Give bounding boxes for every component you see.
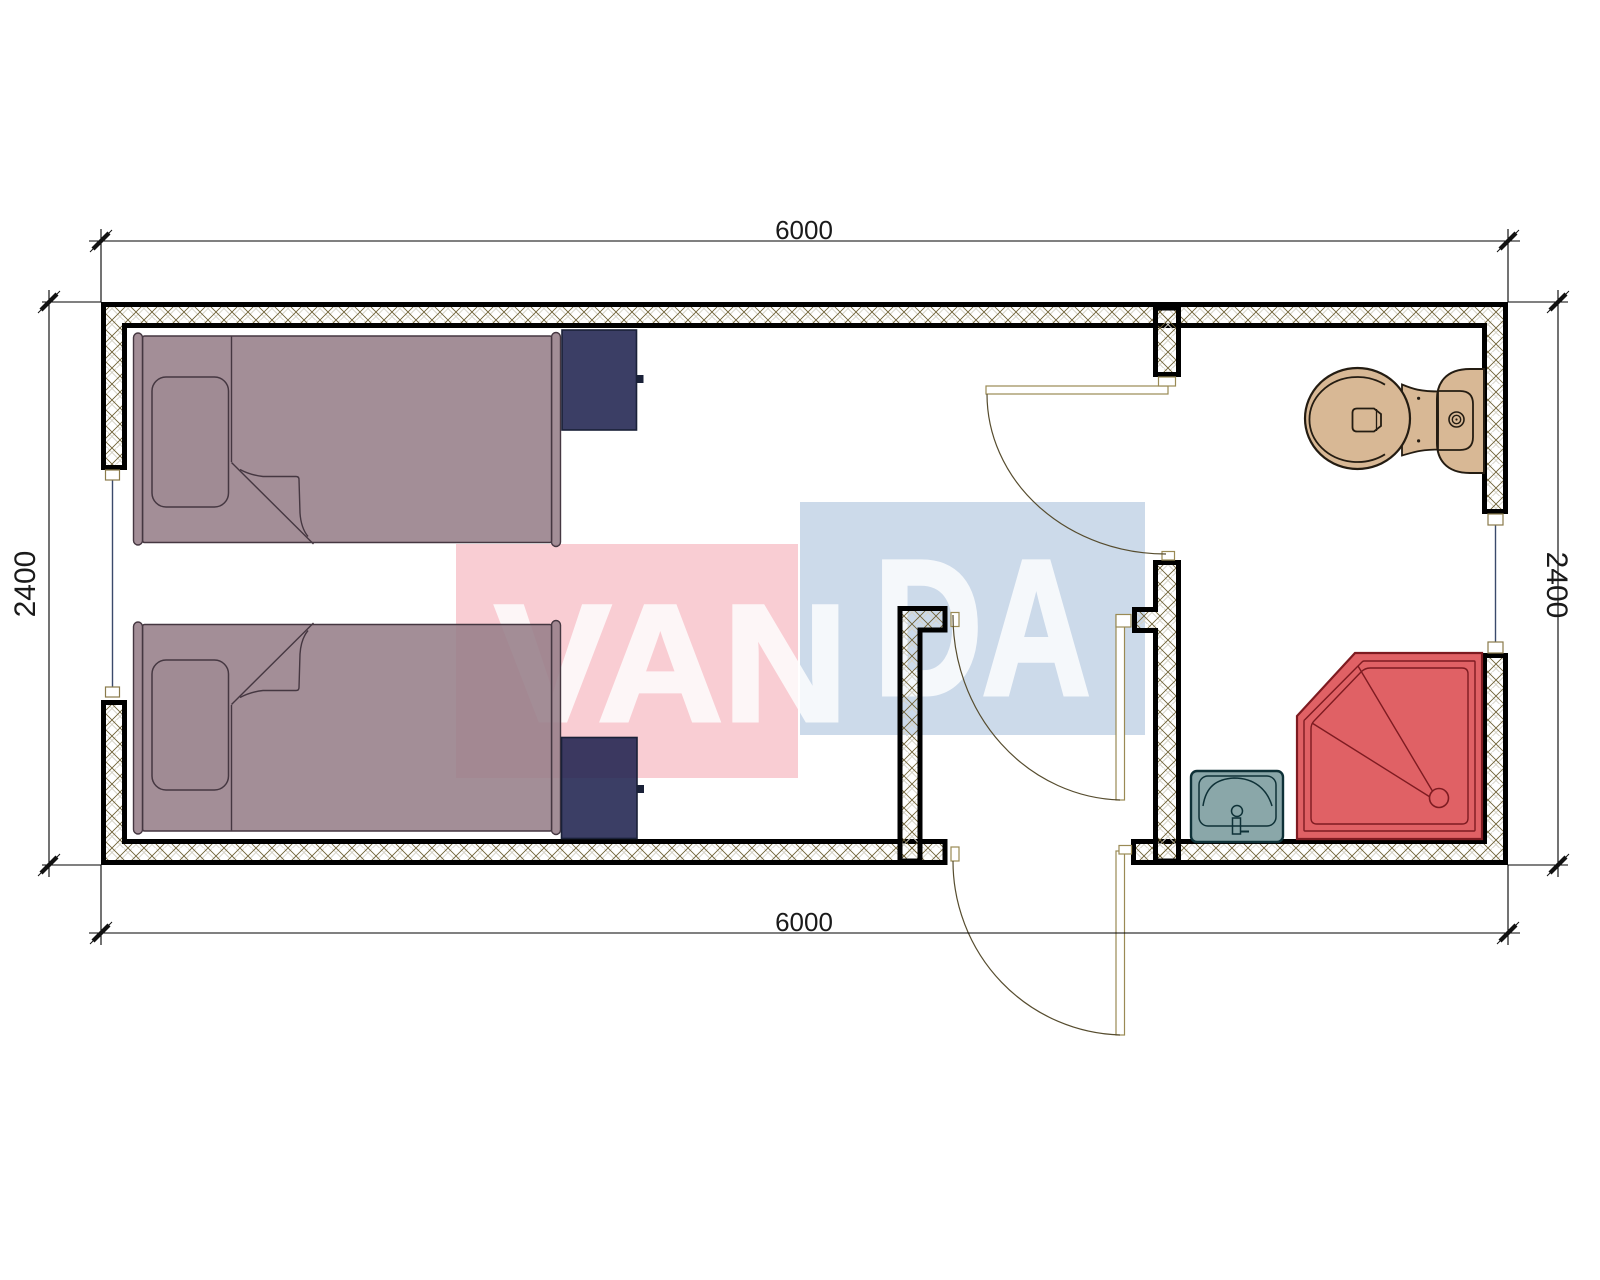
svg-text:6000: 6000: [775, 907, 833, 937]
svg-text:6000: 6000: [775, 215, 833, 245]
svg-text:2400: 2400: [9, 551, 42, 618]
svg-text:2400: 2400: [1540, 552, 1573, 619]
